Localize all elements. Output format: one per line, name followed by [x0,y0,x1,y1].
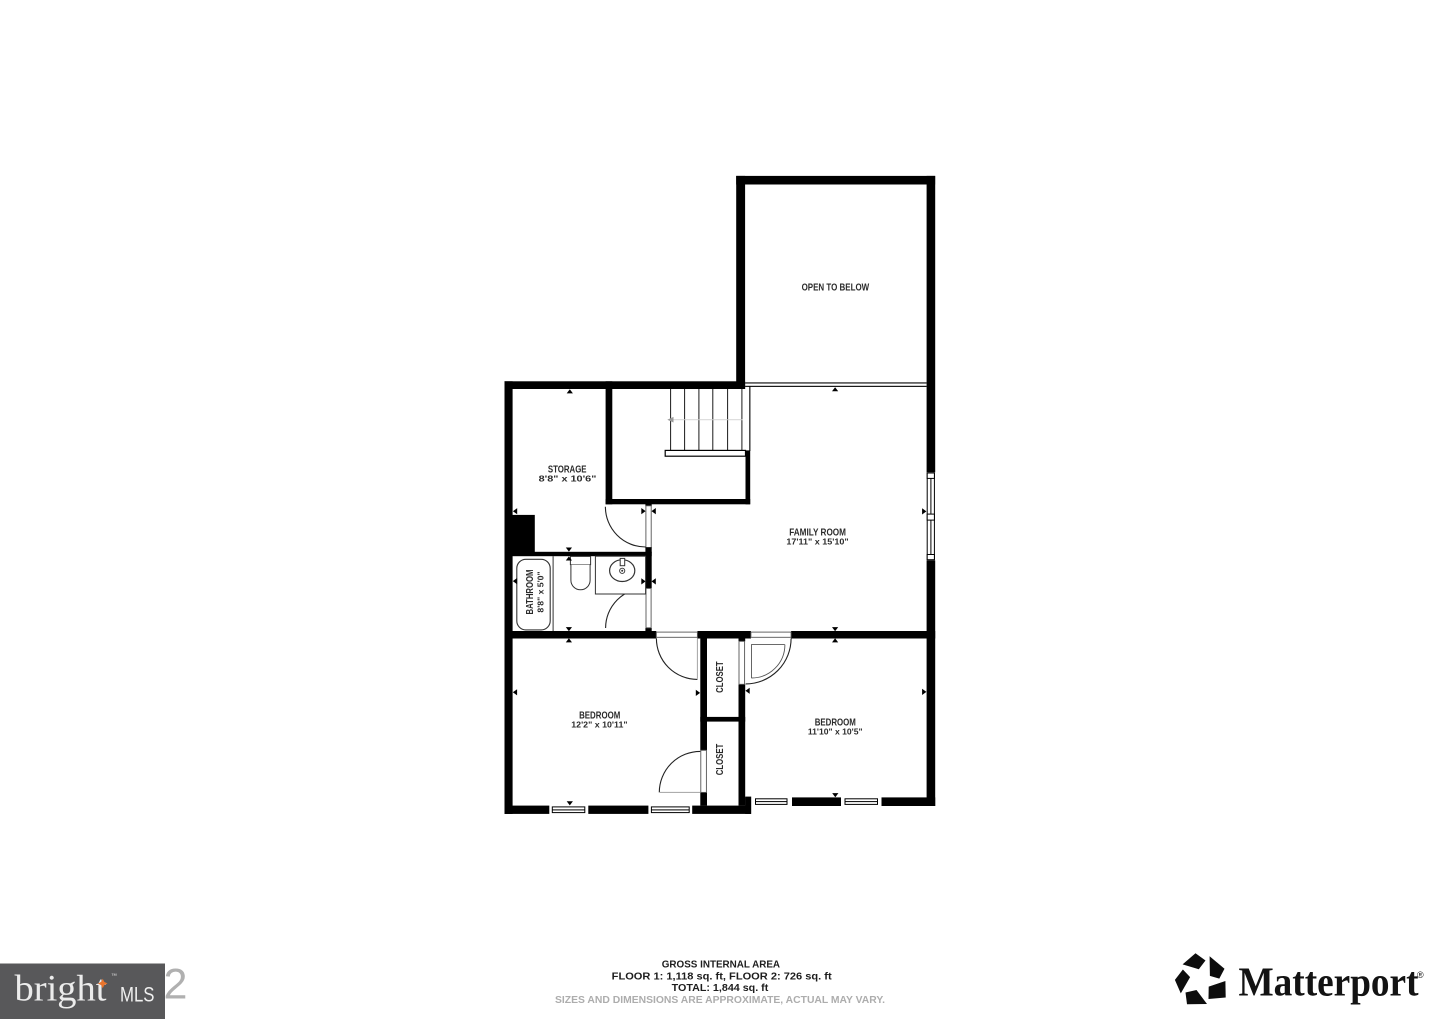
svg-text:MLS: MLS [120,984,155,1007]
svg-text:12'2" x 10'11": 12'2" x 10'11" [571,720,627,730]
svg-text:FLOOR 1: 1,118 sq. ft, FLOOR 2: FLOOR 1: 1,118 sq. ft, FLOOR 2: 726 sq. … [612,971,833,982]
svg-text:8'8" x 5'0": 8'8" x 5'0" [535,571,545,612]
svg-text:™: ™ [111,973,117,980]
svg-text:BATHROOM: BATHROOM [525,570,536,615]
svg-text:17'11" x 15'10": 17'11" x 15'10" [786,537,848,547]
svg-text:Matterport: Matterport [1239,959,1419,1005]
svg-text:®: ® [1417,970,1424,980]
svg-text:2: 2 [164,961,188,1009]
svg-text:OPEN TO BELOW: OPEN TO BELOW [802,283,870,294]
svg-text:11'10" x 10'5": 11'10" x 10'5" [808,727,863,737]
svg-text:bright: bright [15,968,107,1009]
svg-text:TOTAL: 1,844 sq. ft: TOTAL: 1,844 sq. ft [672,983,769,994]
svg-text:GROSS INTERNAL AREA: GROSS INTERNAL AREA [662,959,781,970]
svg-text:CLOSET: CLOSET [715,661,726,693]
svg-text:SIZES AND DIMENSIONS ARE APPRO: SIZES AND DIMENSIONS ARE APPROXIMATE, AC… [555,995,885,1006]
svg-text:8'8" x 10'6": 8'8" x 10'6" [539,474,597,484]
svg-text:CLOSET: CLOSET [715,744,726,776]
